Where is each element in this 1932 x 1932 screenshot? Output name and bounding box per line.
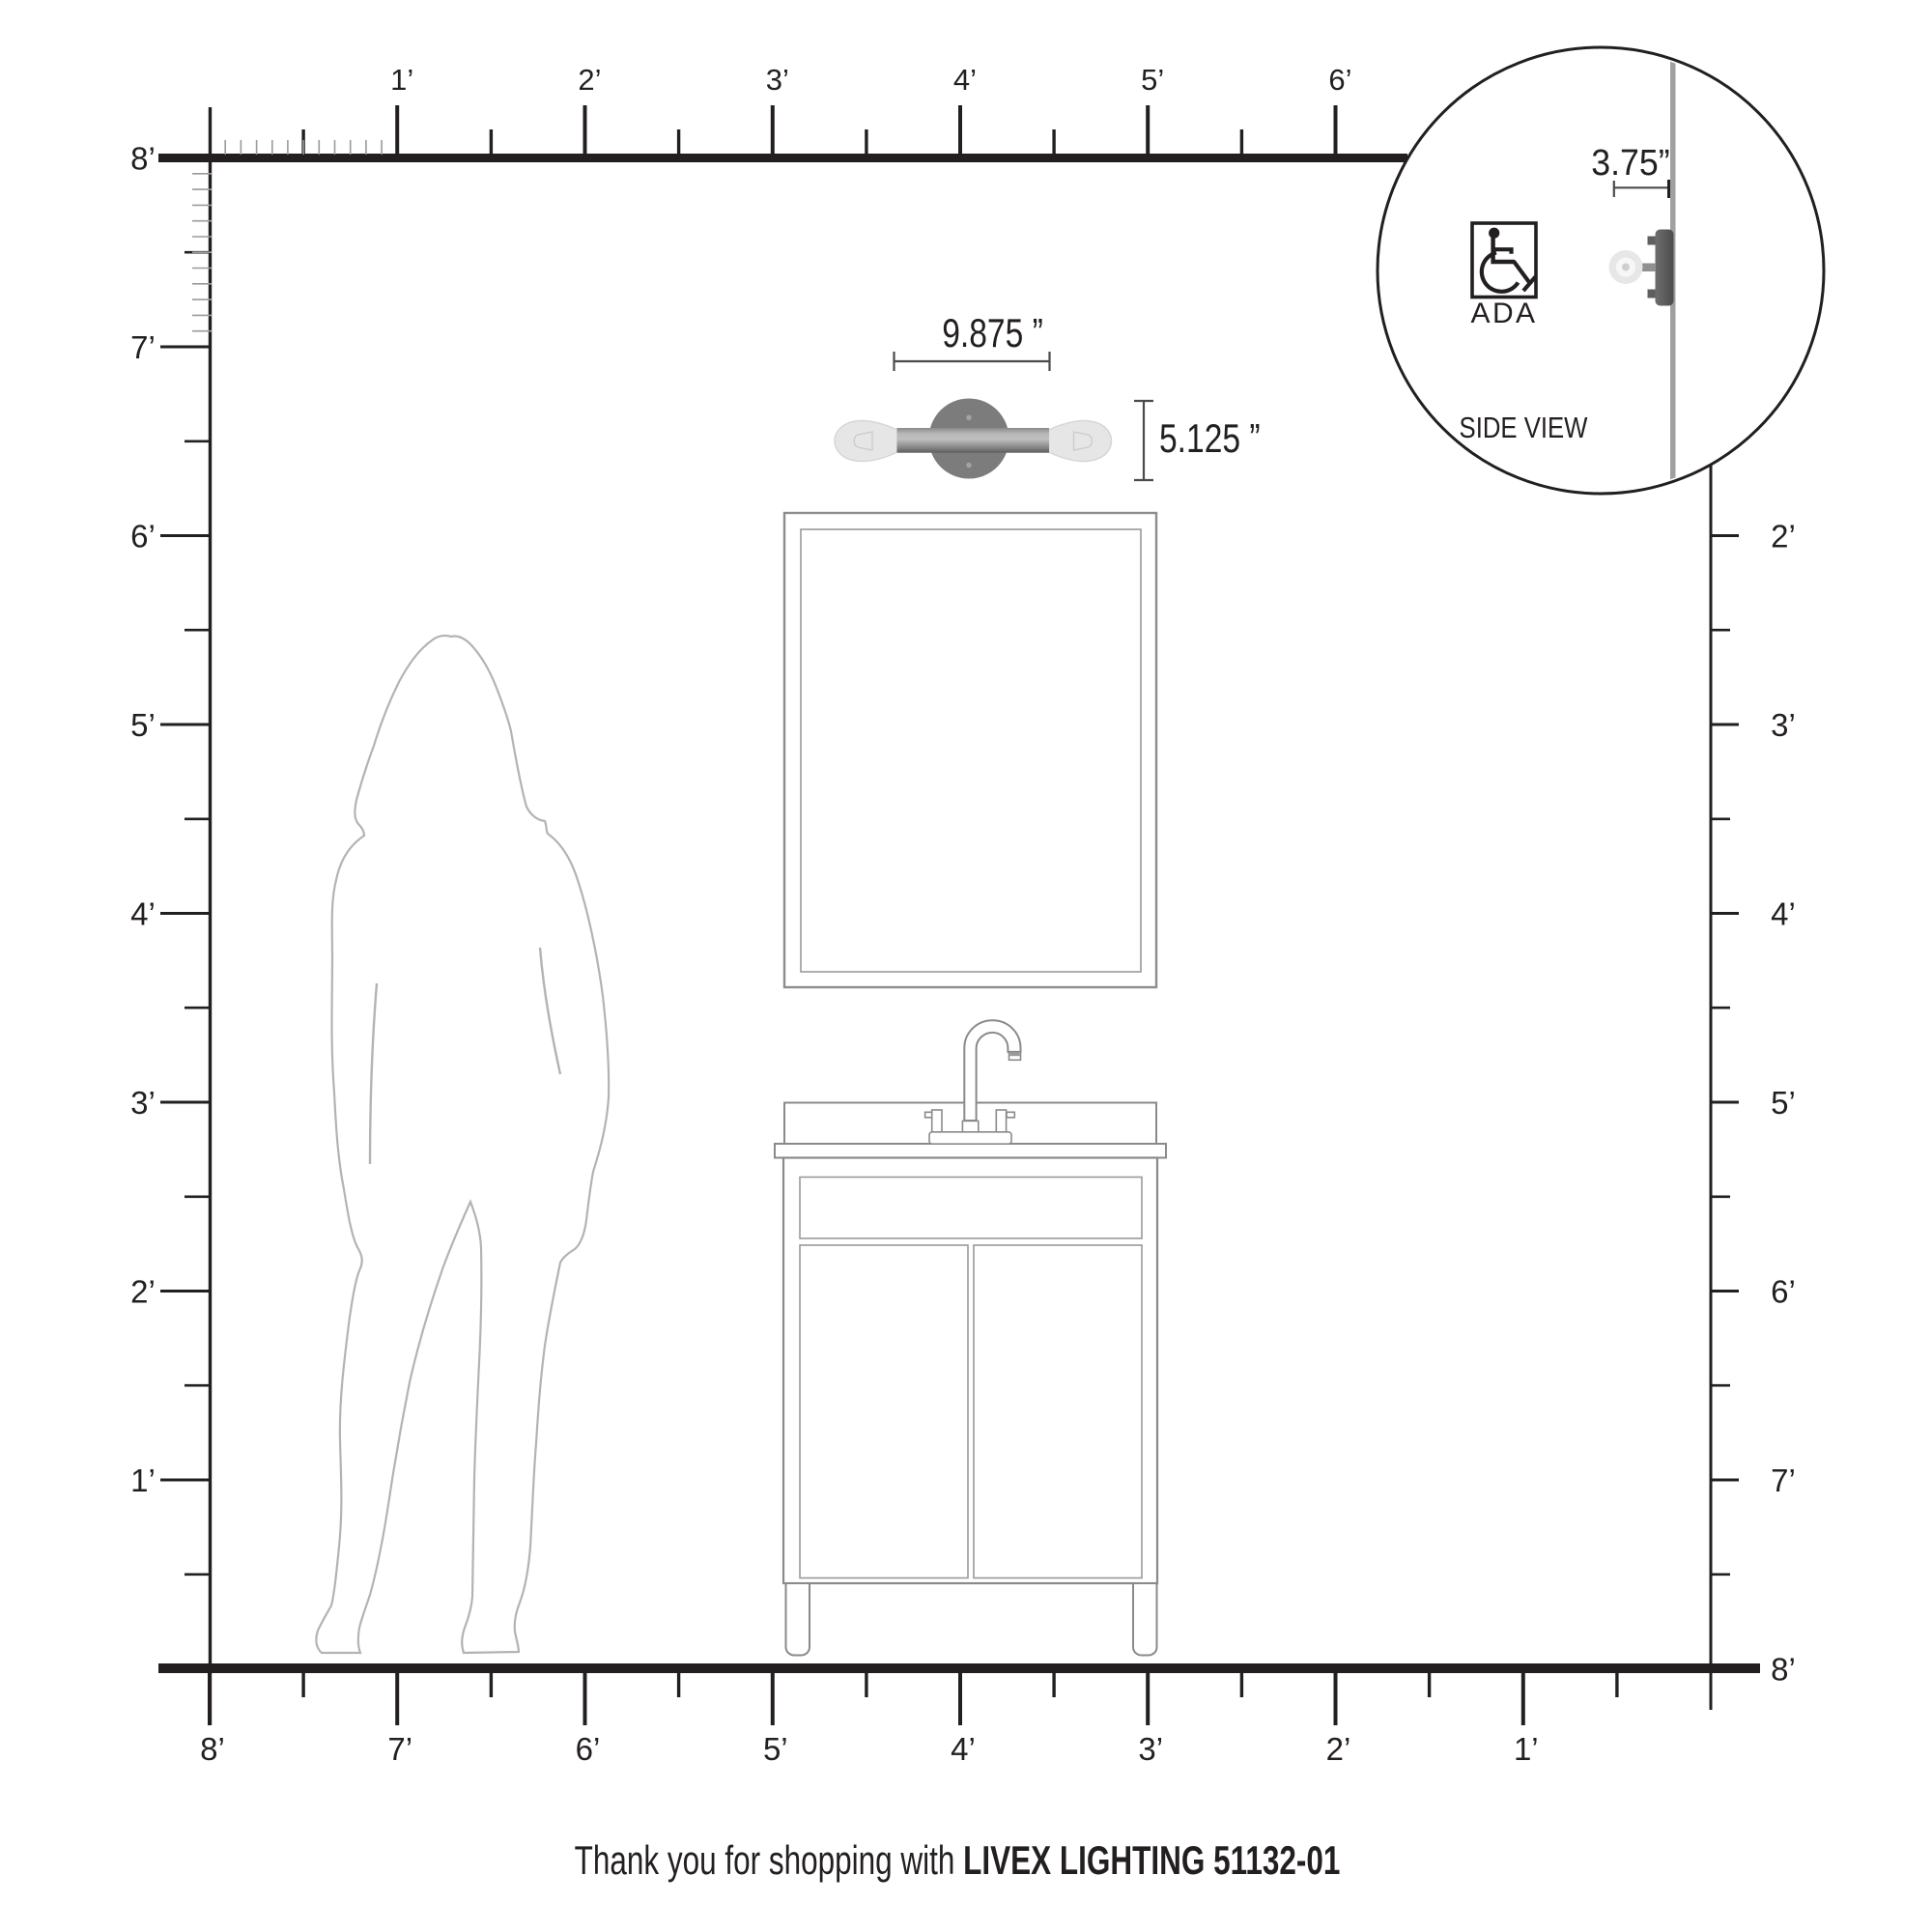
svg-text:3’: 3’ — [130, 1085, 156, 1121]
svg-text:8’: 8’ — [130, 141, 156, 177]
svg-text:5’: 5’ — [130, 707, 156, 743]
svg-text:2’: 2’ — [1771, 519, 1796, 554]
svg-text:4’: 4’ — [1771, 896, 1796, 932]
svg-text:6’: 6’ — [1771, 1274, 1796, 1310]
svg-text:6’: 6’ — [130, 519, 156, 554]
svg-text:5’: 5’ — [1141, 63, 1164, 97]
svg-text:ADA: ADA — [1471, 298, 1538, 329]
svg-text:3.75”: 3.75” — [1591, 142, 1669, 183]
svg-text:8’: 8’ — [200, 1731, 225, 1767]
svg-text:6’: 6’ — [1328, 63, 1351, 97]
svg-text:SIDE VIEW: SIDE VIEW — [1460, 412, 1588, 445]
svg-text:1’: 1’ — [1514, 1731, 1539, 1767]
svg-text:2’: 2’ — [578, 63, 601, 97]
svg-text:2’: 2’ — [130, 1274, 156, 1310]
svg-text:1’: 1’ — [130, 1463, 156, 1498]
svg-text:3’: 3’ — [1771, 707, 1796, 743]
svg-text:1’: 1’ — [390, 63, 413, 97]
svg-text:5’: 5’ — [1771, 1085, 1796, 1121]
svg-text:5’: 5’ — [763, 1731, 788, 1767]
svg-text:8’: 8’ — [1771, 1652, 1796, 1688]
svg-text:2’: 2’ — [1326, 1731, 1351, 1767]
svg-text:7’: 7’ — [387, 1731, 412, 1767]
svg-text:3’: 3’ — [1138, 1731, 1163, 1767]
svg-text:7’: 7’ — [130, 329, 156, 365]
svg-text:7’: 7’ — [1771, 1463, 1796, 1498]
svg-text:5.125 ”: 5.125 ” — [1159, 417, 1261, 462]
svg-text:3’: 3’ — [766, 63, 789, 97]
svg-text:9.875 ”: 9.875 ” — [942, 312, 1043, 356]
svg-text:Thank you for shopping with LI: Thank you for shopping with LIVEX LIGHTI… — [575, 1837, 1341, 1884]
svg-text:4’: 4’ — [953, 63, 977, 97]
svg-text:4’: 4’ — [130, 896, 156, 932]
svg-text:6’: 6’ — [576, 1731, 601, 1767]
svg-text:4’: 4’ — [951, 1731, 976, 1767]
